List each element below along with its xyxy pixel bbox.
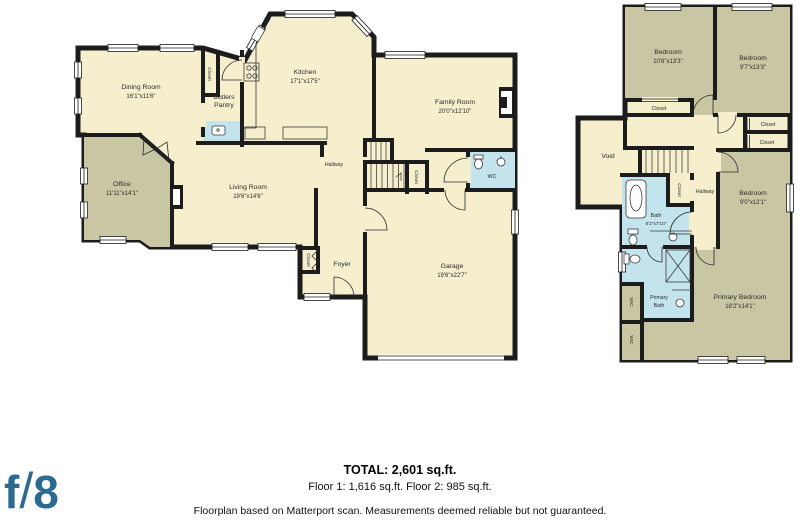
room-label-hallway1: Hallway xyxy=(325,162,344,168)
room-label-office: Office xyxy=(113,181,131,188)
total-sqft: TOTAL: 2,601 sq.ft. xyxy=(0,463,800,477)
room-label-closet-a: Closet xyxy=(761,122,776,128)
room-label-wc: WC xyxy=(488,174,497,180)
room-label-wic2: WIC xyxy=(628,335,634,345)
opening-bed1-closet xyxy=(642,97,678,103)
room-dims-living: 19'6"x14'6" xyxy=(233,194,263,200)
opening-closet-bath-door xyxy=(689,180,695,201)
fireplace-living-icon xyxy=(170,185,183,209)
summary-footer: TOTAL: 2,601 sq.ft. Floor 1: 1,616 sq.ft… xyxy=(0,463,800,523)
room-dims-kitchen: 17'1"x17'5" xyxy=(290,79,320,85)
room-dims-bedroom3: 9'0"x12'1" xyxy=(740,200,766,206)
room-label-garage: Garage xyxy=(441,263,464,270)
opening-bed3-door xyxy=(715,152,721,172)
room-label-closet-foyer: Closet xyxy=(305,253,311,267)
room-dims-family: 20'0"x12'10" xyxy=(439,109,472,115)
room-label-foyer: Foyer xyxy=(333,261,351,268)
room-bedroom3 xyxy=(718,150,790,247)
room-label-closet-pantry: Closet xyxy=(206,67,212,81)
room-dims-bedroom1: 10'8"x13'3" xyxy=(653,59,683,65)
room-label-dining: Dining Room xyxy=(121,84,161,91)
floor1-plan: Dining Room 16'1"x11'6" Office 11'11"x14… xyxy=(75,11,519,362)
room-label-hallway2: Hallway xyxy=(696,189,715,195)
toilet-icon xyxy=(474,155,483,169)
room-label-void: Void xyxy=(601,153,614,160)
room-dims-primary-bedroom: 18'2"x14'1" xyxy=(725,304,755,310)
room-dims-bath: 8'2"x7'10" xyxy=(646,221,667,227)
fireplace-family-icon xyxy=(499,87,514,118)
opening-wc-door xyxy=(465,157,471,183)
room-label-bedroom2: Bedroom xyxy=(739,55,767,62)
garage-door xyxy=(378,355,504,362)
room-label-butlers2: Pantry xyxy=(214,102,234,109)
room-label-bedroom1: Bedroom xyxy=(654,49,682,56)
primary-sink-icon xyxy=(676,299,684,307)
floorplan-canvas: Dining Room 16'1"x11'6" Office 11'11"x14… xyxy=(0,0,800,523)
opening-primary-door xyxy=(696,244,714,250)
bath-toilet-icon xyxy=(628,229,638,245)
opening-garage-door2 xyxy=(362,206,368,232)
opening-garage-door1 xyxy=(444,187,465,193)
primary-toilet-icon xyxy=(624,254,640,264)
room-label-wic1: WIC xyxy=(628,297,634,307)
room-dims-dining: 16'1"x11'6" xyxy=(126,94,155,100)
opening-bath-door xyxy=(689,212,695,235)
room-label-primary-bedroom: Primary Bedroom xyxy=(714,294,767,301)
opening-bath-primarybath xyxy=(647,245,663,250)
room-label-closet-bath: Closet xyxy=(676,183,682,197)
room-label-bath: Bath xyxy=(651,213,662,219)
room-dims-bedroom2: 9'7"x13'3" xyxy=(740,65,766,71)
room-label-kitchen: Kitchen xyxy=(294,69,317,76)
room-dims-office: 11'11"x14'1" xyxy=(106,191,138,197)
room-label-closet-bed1: Closet xyxy=(652,106,667,112)
room-label-closet-stairs: Closet xyxy=(413,170,419,184)
room-label-primary-bath1: Primary xyxy=(650,295,668,301)
room-label-primary-bath2: Bath xyxy=(654,303,665,309)
bathtub-icon xyxy=(626,180,646,218)
opening-bed2-door xyxy=(718,112,737,118)
floor2-plan: Bedroom 10'8"x13'3" Bedroom 9'7"x13'3" B… xyxy=(578,4,794,364)
room-label-closet-b: Closet xyxy=(760,140,775,146)
room-label-bedroom3: Bedroom xyxy=(739,190,767,197)
opening-dining-pantry xyxy=(200,103,206,127)
disclaimer: Floorplan based on Matterport scan. Meas… xyxy=(0,505,800,517)
floor-sqft-breakdown: Floor 1: 1,616 sq.ft. Floor 2: 985 sq.ft… xyxy=(0,481,800,493)
room-label-butlers1: Butlers xyxy=(213,94,235,101)
room-label-living: Living Room xyxy=(229,184,267,191)
pantry-sink-icon xyxy=(212,126,225,135)
room-label-family: Family Room xyxy=(435,99,475,106)
room-dims-garage: 19'6"x22'7" xyxy=(437,273,467,279)
